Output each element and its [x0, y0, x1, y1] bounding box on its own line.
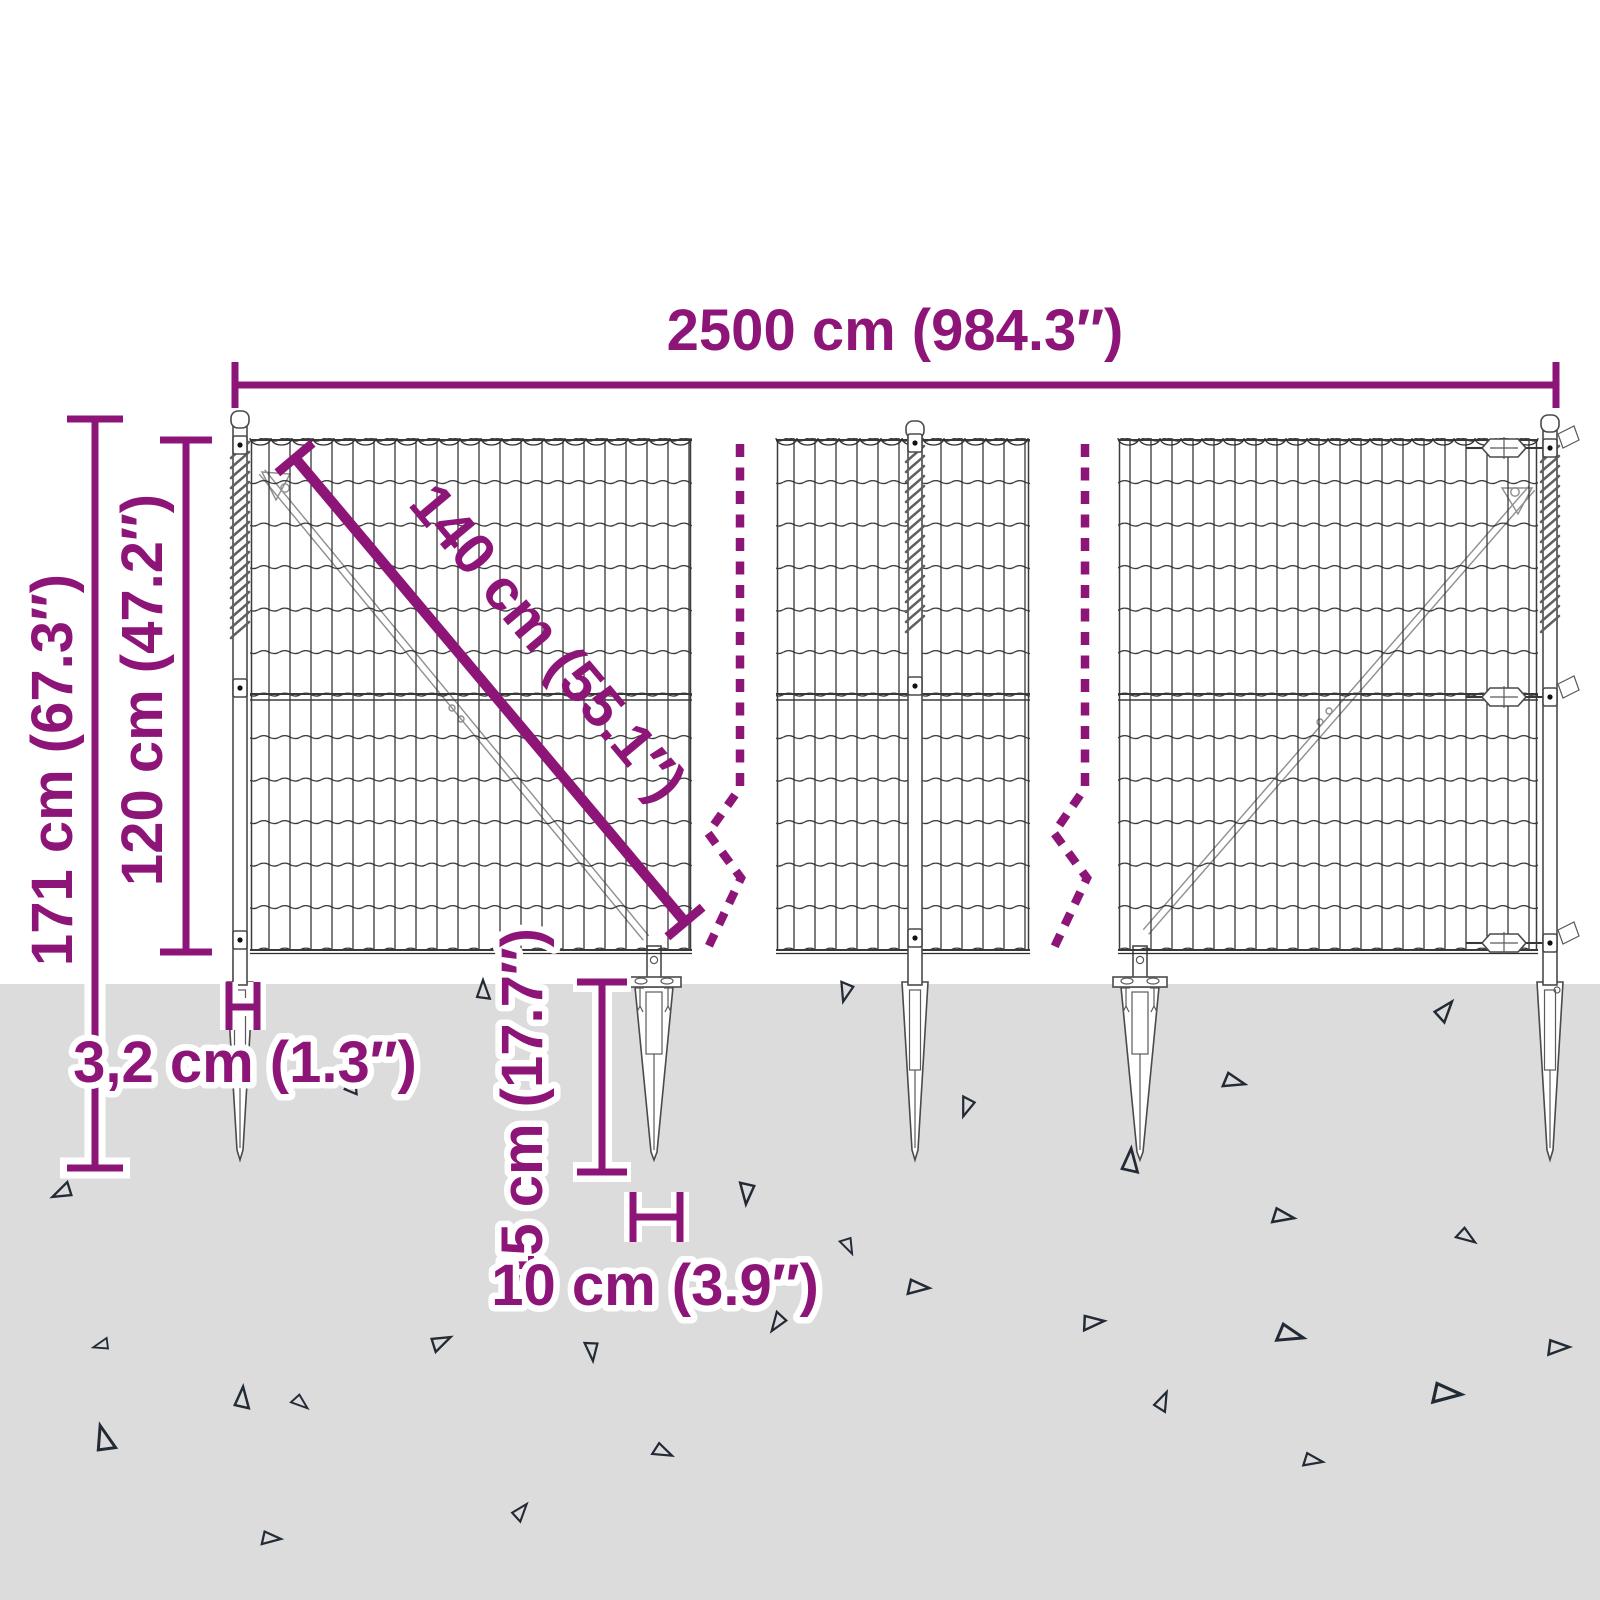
- total-width-label: 2500 cm (984.3″): [667, 298, 1124, 363]
- mesh-panel-3: [1118, 438, 1538, 954]
- mesh-panel-2: [776, 438, 1030, 954]
- post-width-label: 3,2 cm (1.3″): [73, 1030, 417, 1095]
- fence-post-left: [231, 411, 249, 985]
- spike-length-label: 45 cm (17.7″): [490, 928, 555, 1288]
- fence-height-label: 120 cm (47.2″): [110, 494, 175, 886]
- break-line-icon-1: [706, 444, 741, 952]
- fence-post-middle: [906, 421, 924, 985]
- dimension-total-width: 2500 cm (984.3″): [235, 298, 1556, 408]
- dimension-fence-height: 120 cm (47.2″): [110, 440, 212, 952]
- spike-plate-width-label: 10 cm (3.9″): [491, 1253, 819, 1318]
- break-line-icon-2: [1052, 444, 1087, 952]
- diagram-canvas: 2500 cm (984.3″) 171 cm (67.3″) 120 cm (…: [0, 0, 1600, 1600]
- fence-dimension-diagram: 2500 cm (984.3″) 171 cm (67.3″) 120 cm (…: [0, 0, 1600, 1600]
- total-height-label: 171 cm (67.3″): [20, 574, 85, 966]
